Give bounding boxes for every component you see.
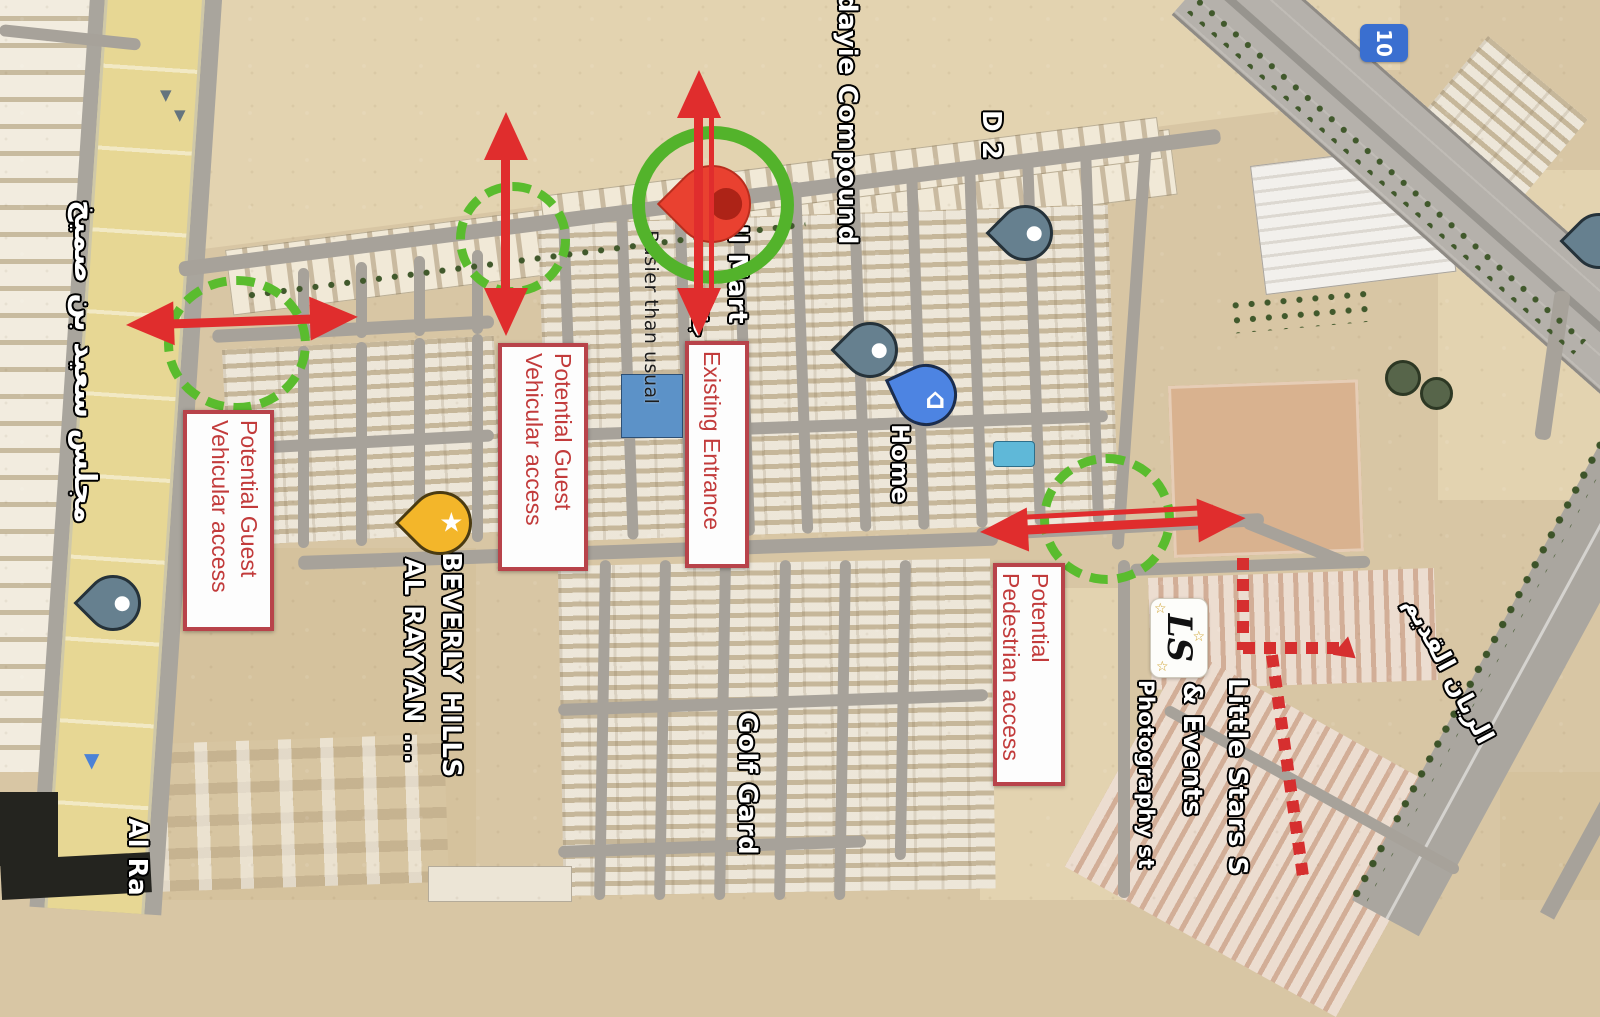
arrow-shaft (502, 142, 511, 306)
label-majlis-road-arabic: مجلس سعيد بن صميخ (67, 200, 102, 523)
annotation-line: Potential Guest (234, 420, 263, 593)
satellite-map: { "annotation_boxes": [ {"lines": ["Pote… (0, 0, 1600, 900)
arrow-head (484, 288, 528, 336)
label-compound[interactable]: dayie Compound (832, 0, 862, 245)
annotation-line: Potential (1025, 573, 1054, 761)
annotation-line: Existing Entrance (697, 351, 726, 530)
vehicular-access-arrow-west (125, 295, 358, 347)
map-pool (993, 441, 1035, 467)
blue-route-arrow-icon: ▼ (84, 748, 99, 772)
pin-center-dot (869, 339, 890, 360)
route-number: 10 (1372, 29, 1396, 57)
map-dark (0, 792, 58, 866)
star-icon: ☆ (1154, 601, 1167, 617)
pin-center-dot (112, 592, 133, 613)
arrow-shaft (695, 100, 704, 306)
arrow-shaft (1010, 515, 1216, 535)
pin-center-dot (1024, 222, 1045, 243)
label-golf-garden[interactable]: Golf Gard (732, 712, 762, 855)
label-little-stars-1[interactable]: Little Stars S (1222, 678, 1252, 876)
street (356, 342, 367, 546)
map-trees (1228, 286, 1371, 334)
route-shield: 10 (1360, 24, 1408, 62)
arrow-head (979, 508, 1029, 554)
star-icon: ☆ (1192, 629, 1205, 645)
lane-arrow-icon: ▼ (174, 106, 186, 124)
annotation-line: Vehicular access (519, 353, 548, 526)
map-tank (1385, 360, 1421, 396)
arrow-head (1197, 496, 1247, 542)
lane-arrow-icon: ▼ (160, 86, 172, 104)
annotation-line: Potential Guest (548, 353, 577, 526)
arrow-head (125, 301, 175, 347)
annotation-line: Vehicular access (205, 420, 234, 593)
arrow-head (677, 70, 721, 118)
label-home[interactable]: Home (886, 424, 914, 504)
existing-entrance-arrow (677, 70, 721, 336)
annotation-box-pedestrian: PotentialPedestrian access (993, 563, 1065, 786)
arrow-head (484, 112, 528, 160)
vehicular-access-arrow-north (484, 112, 528, 336)
annotation-line: Pedestrian access (996, 573, 1025, 761)
label-beverly-hills-2[interactable]: AL RAYYAN ... (398, 558, 428, 764)
label-d2[interactable]: D 2 (976, 110, 1006, 160)
label-beverly-hills-1[interactable]: BEVERLY HILLS (436, 552, 466, 778)
map-tank (1420, 377, 1453, 410)
arrow-head (309, 295, 359, 341)
little-stars-logo[interactable]: LS ☆ ☆ ☆ (1150, 598, 1208, 678)
annotation-box-existing-entrance: Existing Entrance (685, 341, 749, 568)
star-icon: ☆ (1156, 659, 1169, 675)
annotation-box-vehicular-west: Potential GuestVehicular access (183, 410, 274, 631)
dashed-path-segment (1243, 642, 1339, 654)
annotation-box-vehicular-north: Potential GuestVehicular access (498, 343, 588, 571)
star-icon: ★ (439, 507, 463, 538)
dashed-path-segment (1237, 558, 1249, 650)
label-al-rayyan-road: Al Ra (122, 818, 152, 896)
arrow-shaft (156, 313, 328, 328)
street (472, 334, 483, 542)
label-little-stars-3[interactable]: Photography st (1134, 680, 1158, 869)
arrow-head (677, 288, 721, 336)
building-block (428, 866, 572, 902)
street (1118, 560, 1130, 898)
house-icon: ⌂ (926, 382, 946, 415)
label-little-stars-2[interactable]: & Events (1177, 682, 1207, 816)
